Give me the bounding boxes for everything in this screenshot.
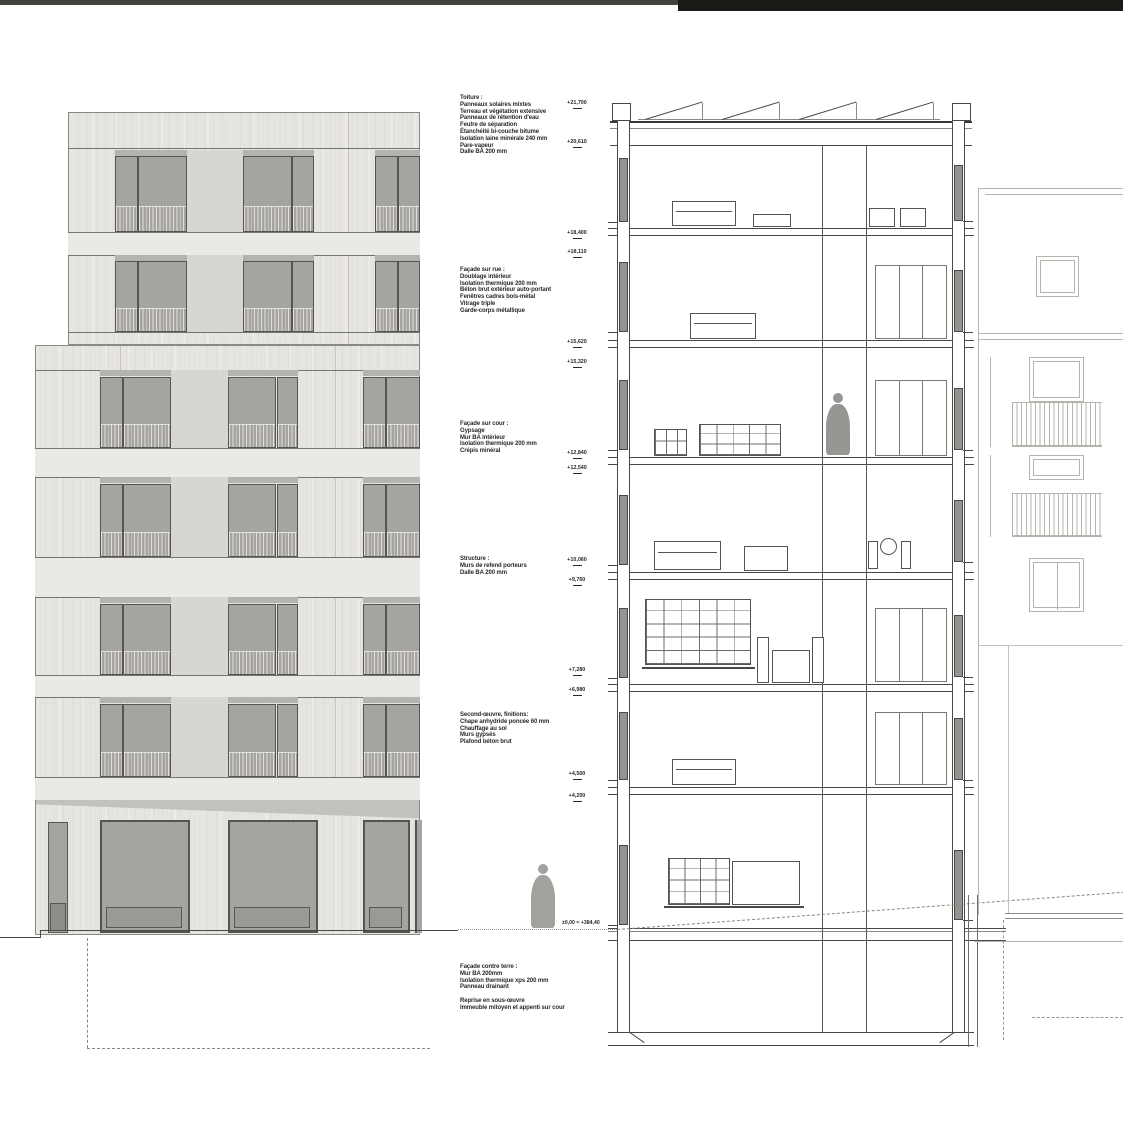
neighbor-window <box>1029 357 1084 402</box>
section-line <box>963 780 973 781</box>
storefront-spandrel <box>369 907 402 928</box>
person-silhouette-body <box>826 404 850 455</box>
architectural-drawing: Toiture :Panneaux solaires mixtesTerreau… <box>0 0 1123 1123</box>
sofa-seat-line <box>676 769 732 770</box>
level-value: +12,840 <box>558 451 596 457</box>
basement-dashed-vertical <box>87 938 88 1048</box>
note-title: Façade contre terre : <box>460 964 578 971</box>
balcony-railing <box>124 424 170 447</box>
section-line <box>963 221 973 222</box>
facade-joint-line <box>35 448 420 449</box>
note-line: Mur BA 200mm <box>460 971 578 978</box>
neighbor-window <box>1029 558 1084 612</box>
storefront-window <box>100 820 190 933</box>
balcony-railing <box>116 206 137 231</box>
level-mark: +18,110 <box>558 250 596 258</box>
note-line: Doublage intérieur <box>460 274 578 281</box>
ground-slab <box>608 928 1006 941</box>
balcony-railing <box>387 651 419 674</box>
level-mark: +15,620 <box>558 340 596 348</box>
level-mark: +12,840 <box>558 451 596 459</box>
elevation-window <box>100 377 123 448</box>
section-window <box>619 495 628 565</box>
facade-joint-line <box>35 675 420 676</box>
level-symbol <box>573 473 582 474</box>
level-symbol <box>573 238 582 239</box>
round-table <box>880 538 897 555</box>
level-value: +18,400 <box>558 231 596 237</box>
section-window <box>619 158 628 222</box>
balcony-railing <box>101 424 122 447</box>
roof-parapet <box>612 103 631 121</box>
level-value: +10,060 <box>558 558 596 564</box>
wardrobe-door-line <box>922 381 923 455</box>
section-line <box>963 450 973 451</box>
balcony-railing <box>229 532 275 556</box>
elevation-window <box>228 377 276 448</box>
balcony-railing <box>229 651 275 674</box>
section-line <box>608 222 618 223</box>
courtyard-dashed-line <box>1032 1017 1123 1018</box>
facade-joint-line <box>35 777 420 778</box>
neighbor-balcony-railing <box>1012 402 1102 447</box>
recess-panel <box>171 697 228 777</box>
balcony-railing <box>376 308 397 331</box>
balcony-railing <box>101 651 122 674</box>
elevation-window <box>115 156 138 232</box>
solar-panel <box>876 101 934 119</box>
level-symbol <box>573 801 582 802</box>
facade-band <box>35 448 420 477</box>
section-window <box>954 500 963 562</box>
elevation-window <box>386 377 420 448</box>
section-window <box>954 388 963 450</box>
level-symbol <box>573 347 582 348</box>
balcony-railing <box>293 206 313 231</box>
elevation-window <box>398 261 420 332</box>
note-line: Mur BA intérieur <box>460 435 578 442</box>
section-line <box>963 332 973 333</box>
section-line <box>664 906 804 908</box>
cabinet <box>744 546 788 571</box>
level-value: +4,200 <box>558 794 596 800</box>
section-line <box>608 678 618 679</box>
neighbor-line <box>985 194 1123 195</box>
elevation-window <box>363 704 386 777</box>
elevation-window <box>292 261 314 332</box>
facade-band <box>35 777 420 800</box>
section-window <box>619 262 628 332</box>
wardrobe-door-line <box>899 609 900 681</box>
recess-panel <box>171 370 228 448</box>
balcony-railing <box>101 752 122 776</box>
section-line <box>608 450 618 451</box>
note-line: Garde-corps métallique <box>460 308 578 315</box>
storefront-window <box>228 820 318 933</box>
balcony-railing <box>139 206 186 231</box>
roof-slab <box>610 121 972 146</box>
facade-joint-line <box>68 232 420 233</box>
window-lintel <box>363 597 420 603</box>
elevation-window <box>123 704 171 777</box>
section-line <box>608 931 1006 932</box>
elevation-window <box>243 156 292 232</box>
section-window <box>619 845 628 925</box>
wardrobe-door-line <box>899 713 900 784</box>
balcony-railing <box>139 308 186 331</box>
storefront-spandrel <box>234 907 310 928</box>
level-mark: +4,200 <box>558 794 596 802</box>
balcony-railing <box>364 651 385 674</box>
wardrobe-door-line <box>922 266 923 338</box>
elevation-window <box>138 261 187 332</box>
neighbor-window-mullion <box>1057 562 1058 610</box>
section-window <box>619 712 628 780</box>
balcony-railing <box>293 308 313 331</box>
section-line <box>1005 913 1123 914</box>
elevation-window <box>228 604 276 675</box>
note-line: Chauffage au sol <box>460 726 578 733</box>
note-title: Façade sur rue : <box>460 267 578 274</box>
balcony-railing <box>244 206 291 231</box>
facade-joint-line <box>68 148 420 149</box>
note-line: Dalle BA 200 mm <box>460 570 578 577</box>
facade-joint-line <box>35 557 420 558</box>
coffee-table <box>753 214 791 227</box>
sidewalk-line <box>0 937 40 938</box>
level-value: +9,760 <box>558 578 596 584</box>
note-line: Vitrage triple <box>460 301 578 308</box>
note-line: Dalle BA 200 mm <box>460 149 578 156</box>
floor-slab <box>608 340 974 348</box>
note-line: Fenêtres cadres bois-métal <box>460 294 578 301</box>
level-value: +4,500 <box>558 772 596 778</box>
bookshelf <box>699 424 781 456</box>
note-extra-line: Reprise en sous-œuvre <box>460 998 578 1005</box>
elevation-window <box>100 484 123 557</box>
level-symbol <box>573 675 582 676</box>
note-second-oeuvre: Second-œuvre, finitions:Chape anhydride … <box>460 712 578 746</box>
entrance-door <box>48 822 68 933</box>
balcony-railing <box>101 532 122 556</box>
note-line: Panneau drainant <box>460 984 578 991</box>
level-symbol <box>573 147 582 148</box>
wardrobe-door-line <box>922 609 923 681</box>
window-lintel <box>363 477 420 483</box>
window-lintel <box>363 697 420 703</box>
level-value: +18,110 <box>558 250 596 256</box>
note-line: Isolation thermique 200 mm <box>460 281 578 288</box>
person-silhouette-body <box>531 875 555 928</box>
floor-slab <box>608 228 974 236</box>
note-facade-contre-terre: Façade contre terre :Mur BA 200mmIsolati… <box>460 964 578 1012</box>
wardrobe <box>875 380 947 456</box>
balcony-railing <box>399 308 419 331</box>
elevation-window <box>243 261 292 332</box>
level-symbol <box>573 108 582 109</box>
balcony-railing <box>278 651 297 674</box>
ground-line <box>40 930 458 931</box>
section-line <box>642 667 755 669</box>
facade-band <box>35 675 420 697</box>
note-facade-cour: Façade sur cour :GypsageMur BA intérieur… <box>460 421 578 455</box>
sofa-seat-line <box>676 211 732 212</box>
chair <box>757 637 769 683</box>
note-line: Isolation thermique 200 mm <box>460 441 578 448</box>
note-line: Gypsage <box>460 428 578 435</box>
recess-panel <box>187 255 243 332</box>
level-mark: +21,700 <box>558 101 596 109</box>
wardrobe-door-line <box>899 266 900 338</box>
section-window <box>619 608 628 678</box>
elevation-window <box>228 704 276 777</box>
balcony-railing <box>278 424 297 447</box>
neighbor-balcony-railing <box>1012 493 1102 537</box>
elevation-window <box>363 377 386 448</box>
neighbor-window-inner <box>1033 361 1080 398</box>
chair <box>901 541 911 569</box>
basement-slab <box>608 1032 974 1046</box>
storefront-window-partial <box>415 820 422 933</box>
side-table <box>900 208 926 227</box>
sofa-seat-line <box>658 552 717 553</box>
person-silhouette-head <box>538 864 548 874</box>
elevation-window <box>123 604 171 675</box>
level-mark: +4,500 <box>558 772 596 780</box>
section-window <box>954 850 963 920</box>
note-facade-rue: Façade sur rue :Doublage intérieurIsolat… <box>460 267 578 315</box>
level-value: +6,980 <box>558 688 596 694</box>
section-line <box>933 103 934 119</box>
sofa <box>690 313 756 339</box>
top-toolbar-edge-right <box>678 0 1123 11</box>
level-mark: +6,980 <box>558 688 596 696</box>
level-mark: +20,610 <box>558 140 596 148</box>
balcony-railing <box>229 424 275 447</box>
elevation-window <box>115 261 138 332</box>
side-table <box>869 208 895 227</box>
elevation-window <box>386 484 420 557</box>
sofa <box>672 201 736 226</box>
elevation-window <box>277 704 298 777</box>
shelf-unit <box>654 429 687 456</box>
floor-slab <box>608 572 974 580</box>
ground-step <box>40 930 41 938</box>
note-line: Murs gypsés <box>460 732 578 739</box>
street-leader-dotted <box>458 929 617 930</box>
section-line <box>608 780 618 781</box>
level-symbol <box>573 585 582 586</box>
level-value: +7,280 <box>558 668 596 674</box>
level-mark: +12,540 <box>558 466 596 474</box>
roof-parapet <box>952 103 971 121</box>
kitchen-counter <box>732 861 800 905</box>
balcony-railing <box>387 424 419 447</box>
note-line: Panneaux de rétention d'eau <box>460 115 578 122</box>
wardrobe <box>875 712 947 785</box>
recess-panel <box>171 597 228 675</box>
elevation-window <box>292 156 314 232</box>
chair <box>812 637 824 683</box>
elevation-window <box>277 377 298 448</box>
elevation-window <box>363 484 386 557</box>
level-value: +21,700 <box>558 101 596 107</box>
balcony-railing <box>399 206 419 231</box>
door-panel <box>50 903 66 931</box>
sofa <box>654 541 721 570</box>
note-line: Béton brut extérieur auto-portant <box>460 287 578 294</box>
note-line: Isolation thermique xps 200 mm <box>460 978 578 985</box>
elevation-window <box>277 484 298 557</box>
facade-band <box>35 557 420 597</box>
floor-slab <box>608 684 974 692</box>
elevation-window <box>277 604 298 675</box>
section-line <box>610 128 972 129</box>
neighbor-line <box>1008 645 1009 913</box>
person-silhouette-head <box>833 393 843 403</box>
neighbor-window <box>1029 455 1084 480</box>
neighbor-line <box>978 645 1123 646</box>
solar-panel <box>799 101 857 119</box>
facade-band <box>68 232 420 255</box>
balcony-railing <box>364 424 385 447</box>
floor-slab <box>608 457 974 465</box>
balcony-railing <box>124 752 170 776</box>
section-line <box>963 562 973 563</box>
note-line: Terreau et végétation extensive <box>460 109 578 116</box>
wardrobe <box>875 608 947 682</box>
note-line: Chape anhydride poncée 60 mm <box>460 719 578 726</box>
balcony-railing <box>364 752 385 776</box>
wardrobe <box>875 265 947 339</box>
elevation-window <box>123 484 171 557</box>
sofa <box>672 759 736 785</box>
elevation-window <box>228 484 276 557</box>
level-value: +20,610 <box>558 140 596 146</box>
elevation-window <box>386 704 420 777</box>
level-value: +12,540 <box>558 466 596 472</box>
floor-slab <box>608 787 974 795</box>
note-title: Second-œuvre, finitions: <box>460 712 578 719</box>
note-extra-line: Immeuble mitoyen et appenti sur cour <box>460 1005 578 1012</box>
elevation-window <box>100 604 123 675</box>
section-line <box>779 103 780 119</box>
balcony-railing <box>387 752 419 776</box>
section-line <box>974 941 1123 942</box>
elevation-window <box>375 261 398 332</box>
section-line <box>702 103 703 119</box>
solar-panel <box>645 101 703 119</box>
level-symbol <box>573 695 582 696</box>
elevation-window <box>386 604 420 675</box>
note-line: Étanchéité bi-couche bitume <box>460 129 578 136</box>
shelf-unit <box>668 858 730 905</box>
sofa-seat-line <box>694 323 752 324</box>
storefront-window <box>363 820 410 933</box>
level-mark: +15,320 <box>558 360 596 368</box>
level-symbol <box>573 458 582 459</box>
balcony-railing <box>278 532 297 556</box>
note-line: Plafond béton brut <box>460 739 578 746</box>
section-window <box>954 270 963 332</box>
level-symbol <box>573 779 582 780</box>
neighbor-line <box>990 357 991 447</box>
section-window <box>954 165 963 221</box>
balcony-railing <box>116 308 137 331</box>
neighbor-line <box>978 188 1123 189</box>
recess-panel <box>171 477 228 557</box>
neighbor-line <box>978 188 979 915</box>
section-line <box>608 565 618 566</box>
level-value: +15,620 <box>558 340 596 346</box>
neighbor-window <box>1036 256 1079 297</box>
wardrobe-door-line <box>922 713 923 784</box>
neighbor-window-inner <box>1040 260 1075 293</box>
elevation-window <box>123 377 171 448</box>
neighbor-window-inner <box>1033 459 1080 476</box>
section-line <box>968 895 969 1047</box>
solar-panel <box>722 101 780 119</box>
elevation-window <box>138 156 187 232</box>
level-symbol <box>573 257 582 258</box>
elevation-window <box>398 156 420 232</box>
level-mark: +7,280 <box>558 668 596 676</box>
balcony-railing <box>229 752 275 776</box>
recess-panel <box>187 150 243 232</box>
section-line <box>866 146 867 1032</box>
ground-level-label: ±0,00 = +384,40 <box>562 920 632 926</box>
note-title: Façade sur cour : <box>460 421 578 428</box>
balcony-railing <box>387 532 419 556</box>
section-window <box>619 380 628 450</box>
elevation-window <box>363 604 386 675</box>
chair <box>868 541 878 569</box>
elevation-window <box>375 156 398 232</box>
balcony-railing <box>124 532 170 556</box>
wardrobe-door-line <box>899 381 900 455</box>
level-symbol <box>573 565 582 566</box>
courtyard-dashed-vertical <box>1003 920 1004 1040</box>
elevation-window <box>100 704 123 777</box>
facade-joint-line <box>68 332 420 333</box>
balcony-railing <box>124 651 170 674</box>
storefront-spandrel <box>106 907 182 928</box>
neighbor-line <box>990 455 991 537</box>
balcony-railing <box>364 532 385 556</box>
section-line <box>856 103 857 119</box>
level-mark: +18,400 <box>558 231 596 239</box>
balcony-railing <box>278 752 297 776</box>
window-lintel <box>363 370 420 376</box>
note-line: Feutre de séparation <box>460 122 578 129</box>
balcony-railing <box>244 308 291 331</box>
section-line <box>1005 918 1123 919</box>
section-line <box>638 119 940 120</box>
level-symbol <box>573 367 582 368</box>
section-line <box>977 895 978 1047</box>
level-mark: +9,760 <box>558 578 596 586</box>
neighbor-line <box>978 333 1123 334</box>
dining-table <box>772 650 810 683</box>
section-window <box>954 615 963 677</box>
neighbor-line <box>978 339 1123 340</box>
basement-dashed-horizontal <box>87 1048 430 1049</box>
section-line <box>822 146 823 1032</box>
bookshelf-large <box>645 599 751 665</box>
level-value: +15,320 <box>558 360 596 366</box>
balcony-railing <box>376 206 397 231</box>
level-mark: +10,060 <box>558 558 596 566</box>
